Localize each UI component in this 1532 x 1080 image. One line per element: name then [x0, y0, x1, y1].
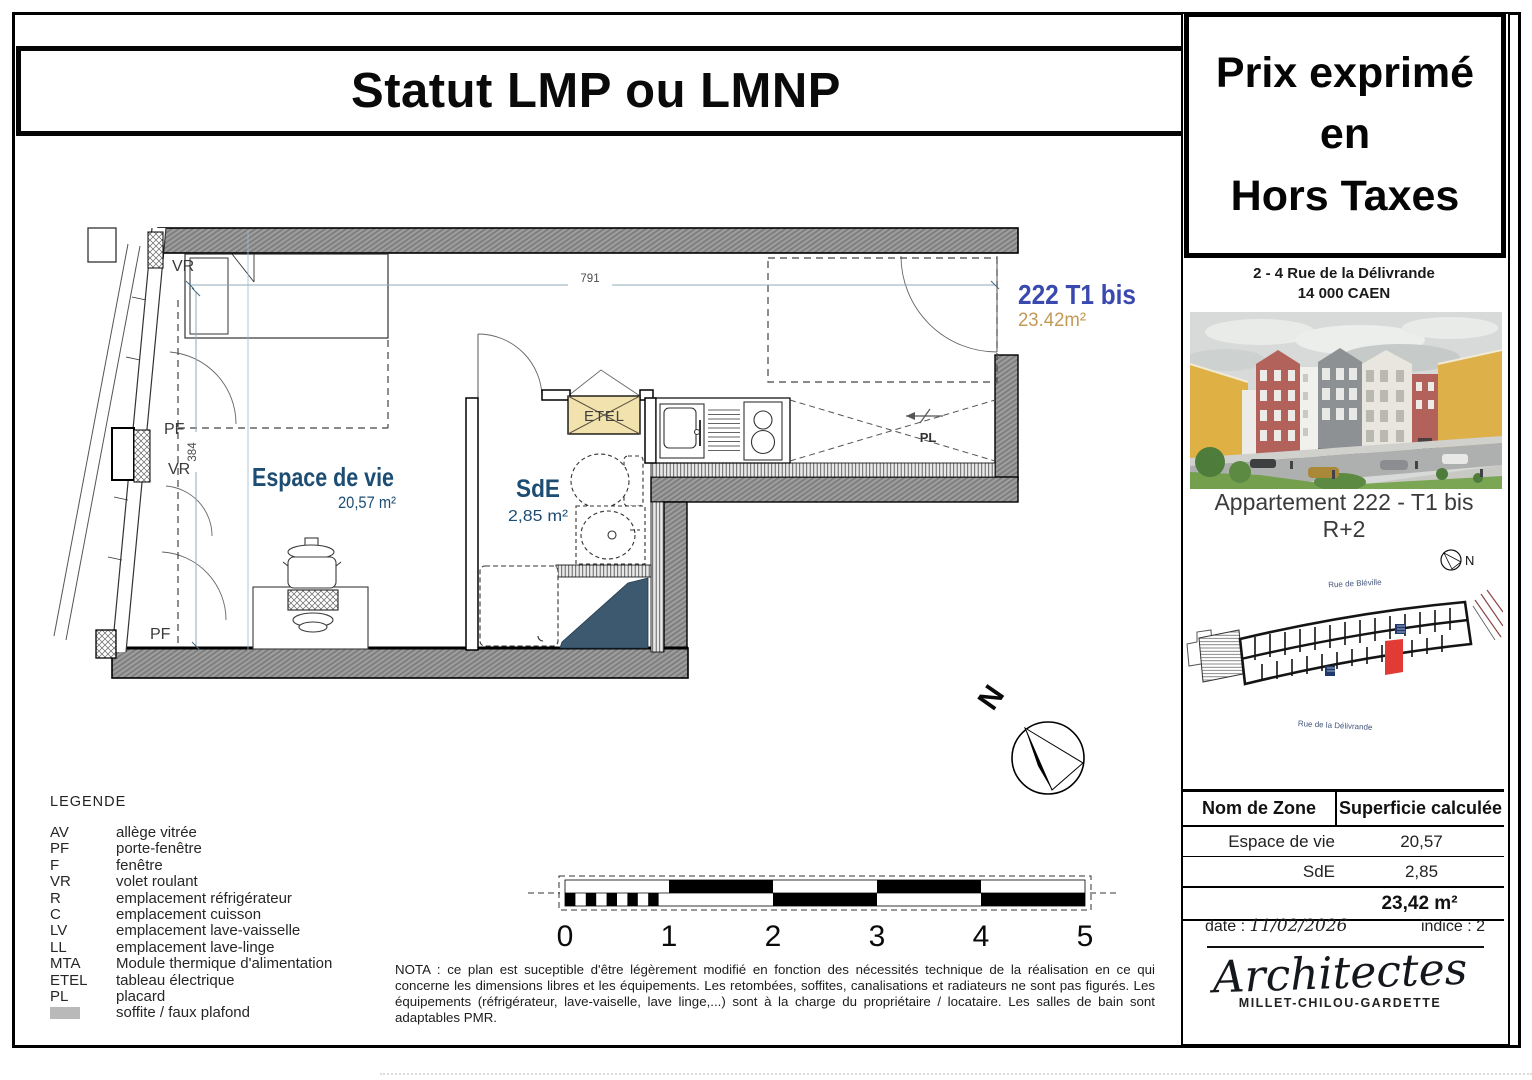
etel-flap [568, 370, 640, 396]
nota-text: NOTA : ce plan est suceptible d'être lég… [395, 962, 1155, 1026]
entry-soffit-zone [768, 258, 997, 382]
scale-tick-3: 3 [869, 920, 886, 953]
legend-abbr: PL [50, 989, 116, 1005]
vr-label-top: VR [172, 258, 194, 275]
legend-label: emplacement cuisson [116, 907, 261, 923]
legend-label: Module thermique d'alimentation [116, 956, 332, 972]
window-box-mid [112, 428, 134, 480]
legend-label: emplacement lave-linge [116, 940, 274, 956]
bed [185, 254, 388, 338]
legend-list: AVallège vitrée PFporte-fenêtre Ffenêtre… [50, 825, 390, 1024]
page-edge-artifact [380, 1073, 1532, 1075]
legend-label: emplacement réfrigérateur [116, 891, 292, 907]
scale-tick-5: 5 [1077, 920, 1094, 953]
page-title: Statut LMP ou LMNP [351, 63, 841, 119]
legend-abbr: PF [50, 841, 116, 857]
shower [480, 566, 558, 646]
street-bottom-label: Rue de la Délivrande [1298, 719, 1374, 732]
arrow-left-icon [906, 412, 915, 420]
legend-label: volet roulant [116, 874, 198, 890]
legend-label: placard [116, 989, 165, 1005]
apartment-line-2: R+2 [1185, 516, 1503, 543]
entry-door-arc [901, 256, 997, 352]
date-value: 11/02/2026 [1249, 916, 1347, 936]
unit-number: 222 T1 bis [1018, 279, 1136, 310]
site-building-footprint [1240, 602, 1471, 684]
site-plan: Rue de Bléville Rue de la Délivrande [1185, 544, 1503, 790]
kitchen-sink [660, 404, 704, 458]
legend-title: LEGENDE [50, 794, 390, 810]
address-line-2: 14 000 CAEN [1185, 284, 1503, 304]
room-area-sde: 2,85 m² [508, 508, 569, 525]
project-address: 2 - 4 Rue de la Délivrande 14 000 CAEN [1185, 264, 1503, 303]
legend-abbr: LV [50, 923, 116, 939]
dim-width-label: 791 [580, 273, 599, 285]
floor-plan: ETEL [40, 198, 1180, 723]
pf-label-mid: PF [164, 421, 185, 438]
legend-label: tableau électrique [116, 973, 234, 989]
legend-item: Ffenêtre [50, 858, 390, 874]
legend-label: fenêtre [116, 858, 163, 874]
dim-height-label: 384 [187, 442, 199, 462]
site-north-compass: N [1441, 550, 1474, 570]
pf-label-bottom: PF [150, 626, 171, 643]
apartment-title: Appartement 222 - T1 bis R+2 [1185, 489, 1503, 543]
legend-item: MTAModule thermique d'alimentation [50, 956, 390, 972]
area-table-header: Nom de Zone Superficie calculée [1183, 789, 1504, 827]
etel-label: ETEL [584, 408, 624, 425]
sde-door-arc [478, 334, 542, 398]
legend-label: emplacement lave-vaisselle [116, 923, 300, 939]
legend-abbr: VR [50, 874, 116, 890]
highlighted-unit [1385, 639, 1403, 675]
room-area-espace: 20,57 m² [338, 493, 396, 512]
scale-tick-1: 1 [661, 920, 678, 953]
soffit-tick-band [651, 463, 995, 477]
north-label: N [972, 679, 1011, 716]
row-zone: Espace de vie [1183, 832, 1339, 852]
legend-abbr: F [50, 858, 116, 874]
legend-item: PLplacard [50, 989, 390, 1005]
soffit-swatch [50, 1005, 116, 1023]
legend-item: LLemplacement lave-linge [50, 940, 390, 956]
indice-label: indice : 2 [1421, 918, 1485, 936]
legend-item: soffite / faux plafond [50, 1005, 390, 1023]
area-table: Nom de Zone Superficie calculée Espace d… [1183, 789, 1504, 921]
row-zone: SdE [1183, 862, 1339, 882]
legend-item: Remplacement réfrigérateur [50, 891, 390, 907]
legend-abbr: C [50, 907, 116, 923]
room-name-sde: SdE [516, 475, 560, 503]
legend: LEGENDE AVallège vitrée PFporte-fenêtre … [50, 794, 390, 1024]
site-north-label: N [1465, 553, 1474, 568]
legend-label: porte-fenêtre [116, 841, 202, 857]
room-name-espace: Espace de vie [252, 462, 394, 492]
vr-label-mid: VR [168, 461, 190, 478]
toilet [571, 454, 643, 508]
scale-tick-0: 0 [557, 920, 574, 953]
table-row: SdE 2,85 [1183, 857, 1504, 888]
washbasin [576, 506, 645, 564]
legend-item: PFporte-fenêtre [50, 841, 390, 857]
desk [253, 538, 368, 649]
street-top-label: Rue de Bléville [1328, 578, 1382, 590]
legend-label: soffite / faux plafond [116, 1005, 250, 1023]
vr-box-mid [134, 430, 150, 482]
legend-item: LVemplacement lave-vaisselle [50, 923, 390, 939]
kitchen-hob [744, 402, 782, 460]
placard-zone: PL [790, 400, 995, 461]
pl-label: PL [920, 430, 937, 445]
plan-sheet: Statut LMP ou LMNP Prix exprimé en Hors … [0, 0, 1532, 1080]
legend-label: allège vitrée [116, 825, 197, 841]
left-facade [54, 228, 166, 658]
header-superficie: Superficie calculée [1337, 798, 1504, 819]
apartment-line-1: Appartement 222 - T1 bis [1185, 489, 1503, 516]
scale-numbers: 0 1 2 3 4 5 [557, 920, 1094, 953]
architect-name: Architectes [1187, 945, 1493, 1004]
title-box: Statut LMP ou LMNP [16, 46, 1296, 136]
date-row: date : 11/02/2026 indice : 2 [1205, 916, 1485, 936]
legend-abbr: AV [50, 825, 116, 841]
legend-abbr: MTA [50, 956, 116, 972]
legend-item: ETELtableau électrique [50, 973, 390, 989]
price-line-3: Hors Taxes [1231, 166, 1460, 227]
legend-abbr: R [50, 891, 116, 907]
header-zone: Nom de Zone [1183, 792, 1337, 825]
scale-tick-4: 4 [973, 920, 990, 953]
balcony-block [88, 228, 116, 262]
site-hatch-block [1199, 630, 1243, 682]
date-label: date : [1205, 918, 1245, 935]
scale-tick-2: 2 [765, 920, 782, 953]
soffit-wedge [560, 578, 648, 648]
price-line-1: Prix exprimé [1216, 43, 1474, 104]
vr-box-top [148, 232, 163, 268]
price-line-2: en [1320, 104, 1370, 165]
legend-abbr: LL [50, 940, 116, 956]
architect-signature: Architectes MILLET-CHILOU-GARDETTE [1188, 950, 1492, 1010]
legend-item: Cemplacement cuisson [50, 907, 390, 923]
legend-item: AVallège vitrée [50, 825, 390, 841]
unit-area: 23.42m² [1018, 310, 1086, 331]
building-render [1190, 312, 1502, 489]
compass-needle-outline [1025, 728, 1083, 790]
legend-item: VRvolet roulant [50, 874, 390, 890]
kitchen [656, 398, 790, 463]
total-area: 23,42 m² [1335, 893, 1504, 915]
row-area: 20,57 [1339, 832, 1504, 852]
address-line-1: 2 - 4 Rue de la Délivrande [1185, 264, 1503, 284]
etel-box: ETEL [568, 396, 640, 434]
row-area: 2,85 [1339, 862, 1504, 882]
vr-box-bottom [96, 630, 116, 658]
scale-bar: 0 1 2 3 4 5 [520, 866, 1120, 958]
price-box: Prix exprimé en Hors Taxes [1184, 12, 1506, 258]
legend-abbr: ETEL [50, 973, 116, 989]
table-row: Espace de vie 20,57 [1183, 827, 1504, 857]
neighbor-right-outline [1473, 590, 1503, 640]
north-compass: N [955, 678, 1100, 803]
